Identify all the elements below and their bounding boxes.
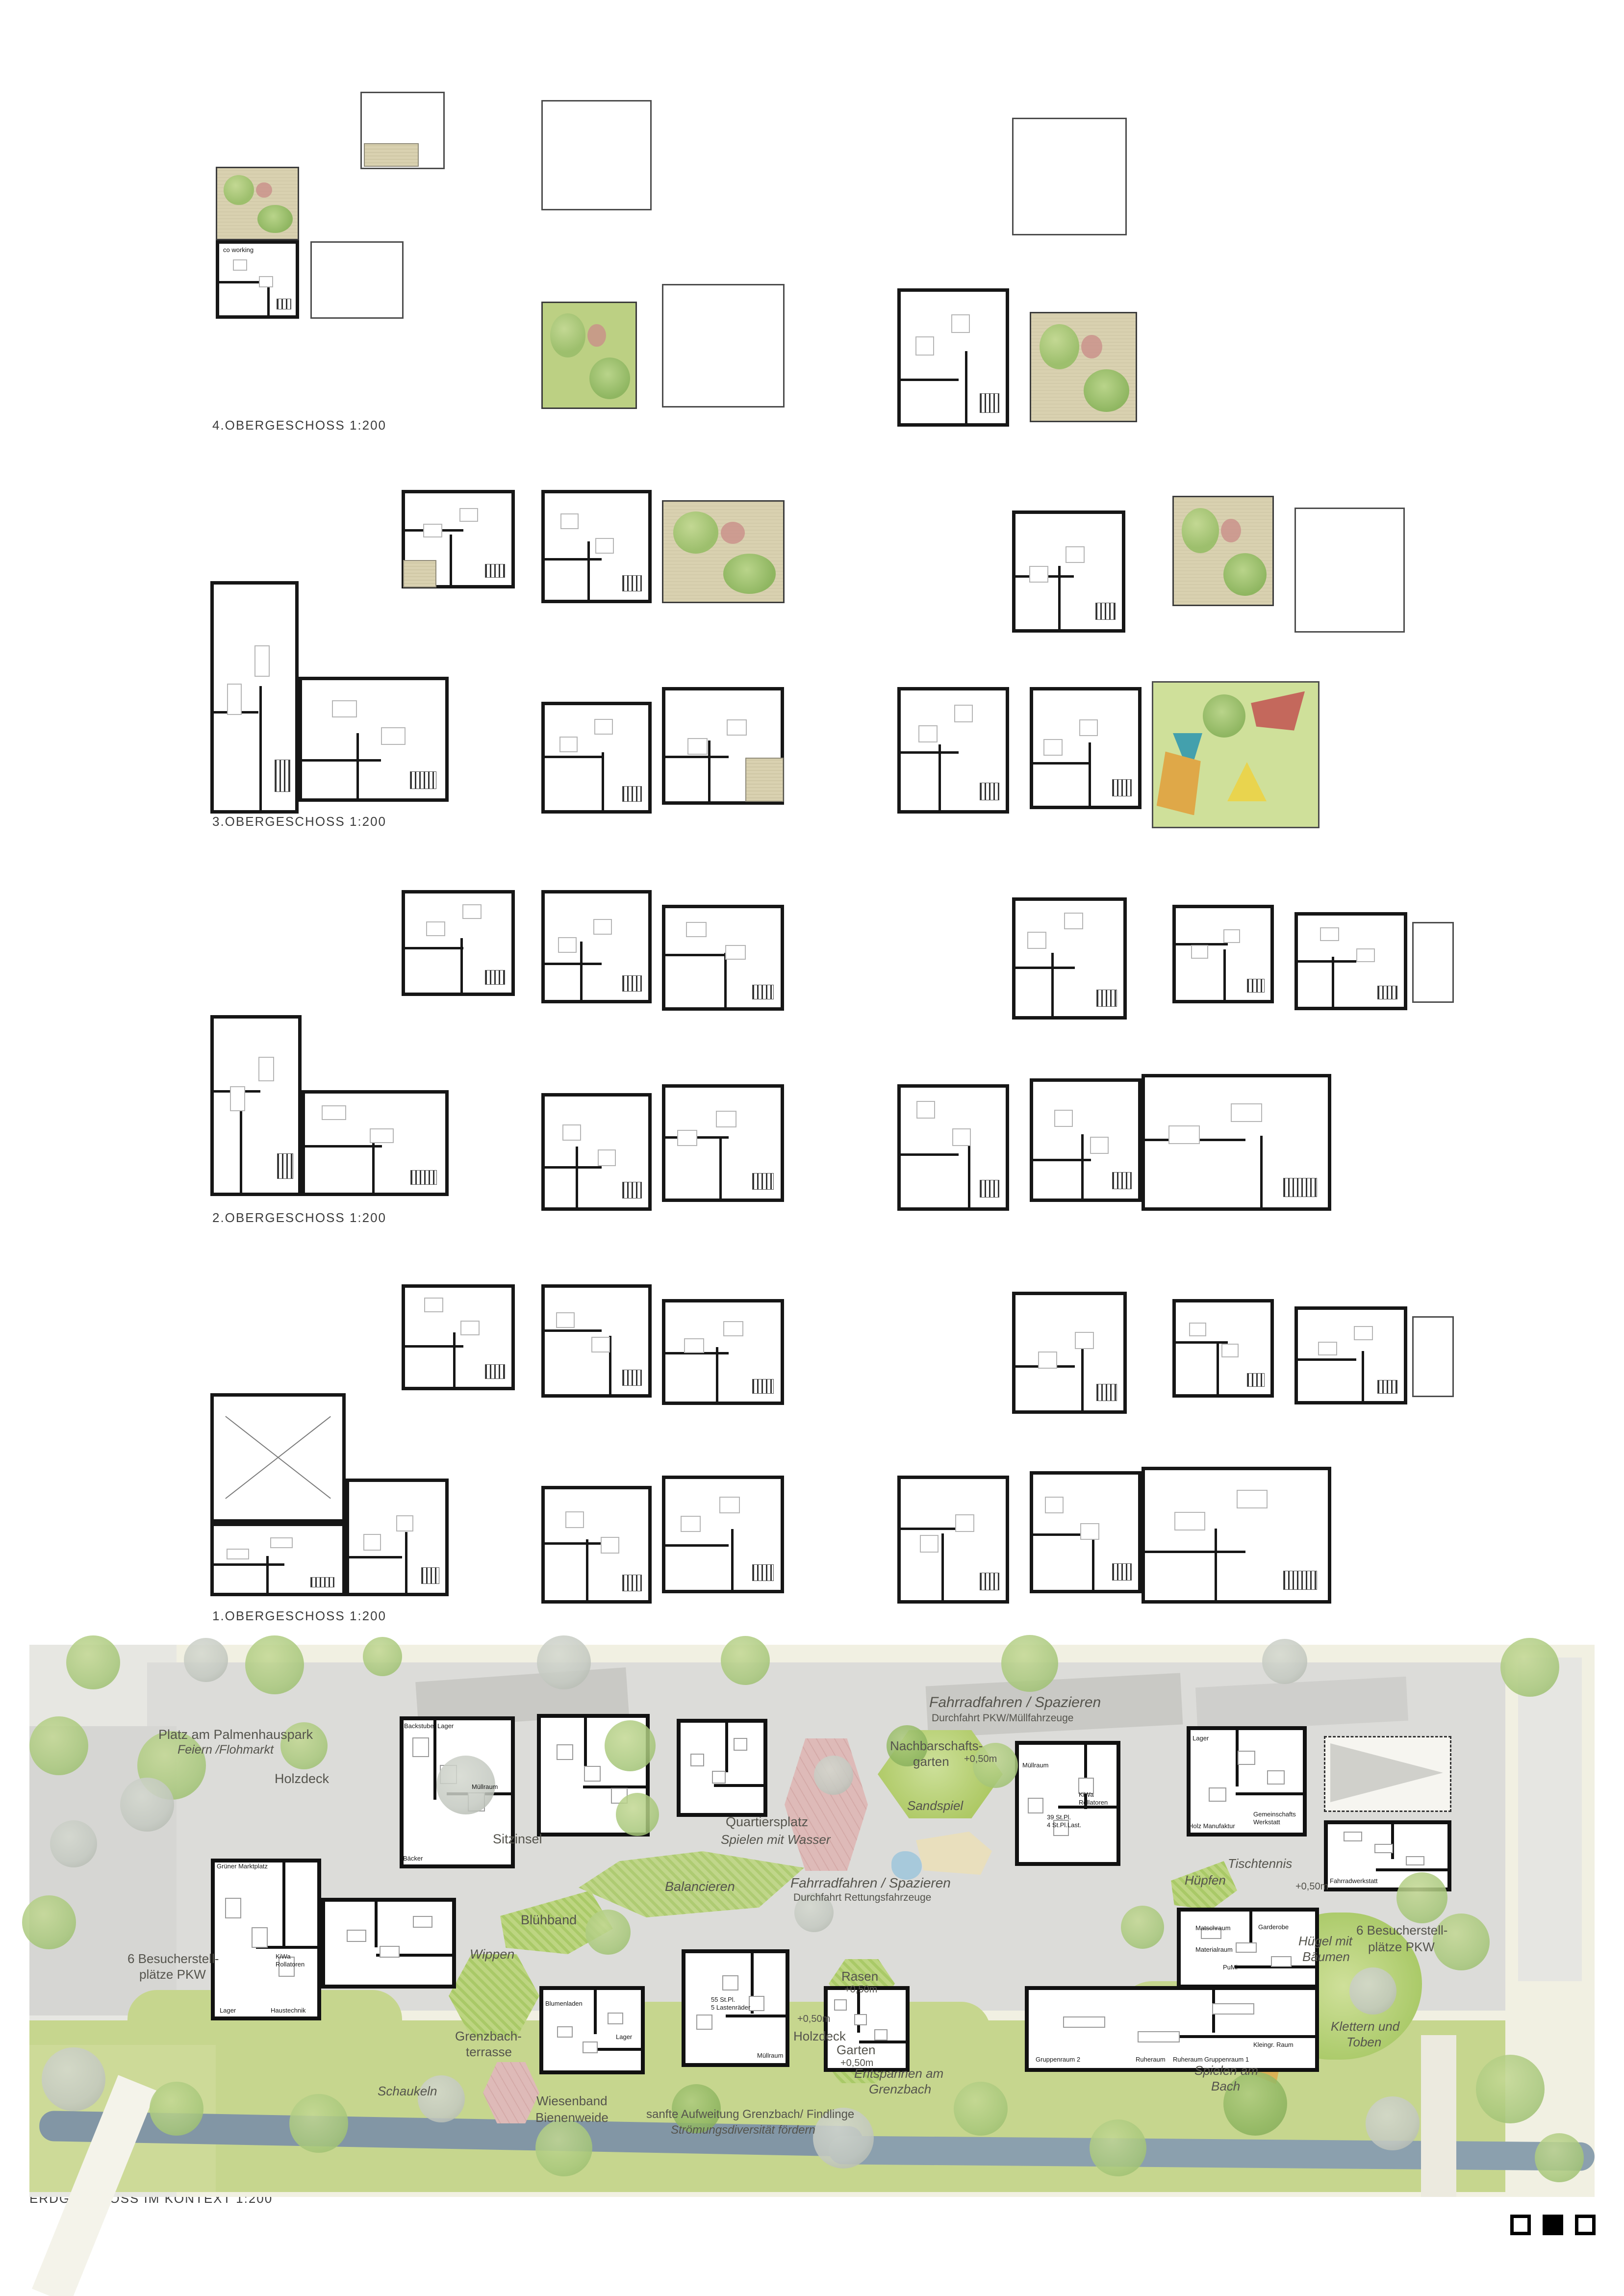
stair-icon <box>622 1575 642 1591</box>
stair-icon <box>410 771 437 789</box>
room-label: Gemeinschafts Werkstatt <box>1253 1811 1296 1826</box>
site-label: Quartiersplatz <box>726 1814 808 1830</box>
interior-wall <box>214 1563 284 1566</box>
furniture <box>424 1298 443 1312</box>
interior-wall <box>405 947 463 949</box>
site-label: Nachbarschafts- <box>890 1739 983 1754</box>
furniture <box>347 1930 366 1941</box>
site-label: Entspannen am <box>854 2066 943 2081</box>
interior-wall <box>580 942 583 1000</box>
stair-icon <box>277 1153 293 1179</box>
tree-icon <box>1262 1639 1307 1684</box>
stair-icon <box>980 1573 1000 1591</box>
tree-icon <box>616 1793 659 1836</box>
floor-plan-building <box>541 1486 652 1604</box>
tree-icon <box>120 1778 174 1832</box>
tree-icon <box>1349 1967 1396 2015</box>
play-structure <box>1251 691 1305 731</box>
site-label: Tischtennis <box>1228 1857 1292 1871</box>
stair-icon <box>1283 1571 1317 1590</box>
floor-plan-building <box>897 687 1009 814</box>
furniture <box>593 919 612 935</box>
site-label: sanfte Aufweitung Grenzbach/ Findlinge <box>646 2108 854 2121</box>
stair-icon <box>1377 986 1397 999</box>
room-label: Bäcker <box>403 1855 423 1862</box>
site-label: Wiesenband <box>536 2094 608 2109</box>
floor-plan-building <box>1294 1306 1407 1404</box>
furniture <box>915 336 934 356</box>
interior-wall <box>665 1544 729 1547</box>
furniture <box>1374 1844 1393 1853</box>
furniture <box>233 259 247 271</box>
interior-wall <box>453 1332 456 1387</box>
floor-plan-building <box>662 1476 784 1593</box>
furniture <box>920 1535 939 1553</box>
tree-icon <box>814 1756 853 1795</box>
furniture <box>258 1057 274 1081</box>
interior-wall <box>450 535 452 585</box>
room-label: Ruheraum <box>1173 2056 1203 2064</box>
tree-icon <box>1084 369 1130 412</box>
tree-icon <box>257 205 293 233</box>
furniture <box>252 1927 268 1948</box>
floor-plan-building <box>1030 687 1142 809</box>
furniture <box>1231 1103 1262 1122</box>
stair-icon <box>622 786 642 802</box>
floor-plan-building <box>1294 508 1405 633</box>
interior-wall <box>405 1532 407 1593</box>
furniture <box>558 937 577 953</box>
furniture <box>1028 1798 1043 1814</box>
furniture <box>1027 932 1046 949</box>
site-label: Balancieren <box>665 1879 735 1894</box>
site-zone <box>1421 2035 1456 2197</box>
room-label: Holz Manufaktur <box>1189 1822 1235 1830</box>
furniture <box>686 922 707 937</box>
furniture <box>749 1996 765 2011</box>
site-building <box>211 1859 321 2020</box>
interior-wall <box>545 558 602 561</box>
shelter-roof-triangle <box>1330 1743 1443 1802</box>
play-structure <box>1157 751 1201 815</box>
room-label: Gruppenraum 1 <box>1204 2056 1249 2064</box>
furniture <box>716 1111 736 1127</box>
floor-plan-building <box>210 1393 346 1523</box>
site-label: Schaukeln <box>378 2084 437 2099</box>
site-label: plätze PKW <box>1368 1940 1435 1955</box>
furniture <box>459 508 479 522</box>
tree-icon <box>537 1635 591 1689</box>
furniture <box>952 1128 971 1146</box>
floor-plan-building <box>210 1015 302 1196</box>
furniture <box>1221 1344 1239 1357</box>
furniture <box>584 1766 601 1782</box>
interior-wall <box>266 1556 269 1593</box>
furniture <box>1344 1832 1362 1841</box>
furniture <box>1168 1125 1200 1144</box>
site-label: Hügel mit <box>1298 1934 1352 1949</box>
bike-shelter-outline <box>1324 1736 1451 1812</box>
floor-plan-building <box>662 1299 784 1405</box>
interior-wall <box>1298 960 1356 963</box>
page-dot-2[interactable] <box>1543 2215 1563 2235</box>
interior-wall <box>460 938 463 993</box>
interior-wall <box>545 963 602 965</box>
furniture <box>462 904 482 919</box>
furniture <box>854 2014 867 2025</box>
furniture <box>1354 1326 1373 1340</box>
furniture <box>684 1338 705 1353</box>
site-label: Spielen am <box>1194 2064 1258 2078</box>
room-label: Lager <box>616 2033 632 2041</box>
interior-wall <box>725 1723 728 1772</box>
interior-wall <box>1033 762 1091 765</box>
site-building <box>677 1719 767 1817</box>
stair-icon <box>1095 603 1116 620</box>
furniture <box>1223 929 1241 943</box>
tree-icon <box>224 175 254 204</box>
interior-wall <box>731 1529 734 1590</box>
floor-plan-building <box>541 1284 652 1398</box>
site-label: terrasse <box>466 2045 512 2060</box>
furniture <box>696 2015 712 2030</box>
interior-wall <box>602 752 604 810</box>
furniture <box>874 2029 887 2041</box>
site-label: Toben <box>1346 2035 1381 2050</box>
site-label: Sandspiel <box>907 1799 963 1813</box>
interior-wall <box>1145 1551 1245 1553</box>
interior-wall <box>375 1902 378 1947</box>
interior-wall <box>1236 1792 1303 1795</box>
site-label: Spielen mit Wasser <box>721 1833 831 1847</box>
site-label: Platz am Palmenhauspark <box>158 1727 313 1742</box>
site-building <box>539 1986 645 2074</box>
furniture <box>1075 1332 1094 1349</box>
tree-icon <box>673 511 719 554</box>
interior-wall <box>1051 953 1054 1016</box>
room-label: KiWa Rollatoren <box>1079 1791 1108 1806</box>
tree-icon <box>723 554 776 594</box>
tree-icon <box>1500 1638 1559 1697</box>
interior-wall <box>714 1784 763 1787</box>
furniture <box>916 1101 935 1119</box>
furniture <box>1043 739 1062 756</box>
floor-plan-building <box>1030 312 1137 422</box>
stair-icon <box>752 985 774 999</box>
floor-plan-building <box>897 1476 1009 1604</box>
furniture <box>332 700 357 717</box>
interior-wall <box>901 379 959 381</box>
site-label: Hüpfen <box>1185 1873 1226 1888</box>
furniture <box>363 1534 381 1550</box>
floor-plan-building <box>1152 681 1319 828</box>
site-label: Grenzbach <box>869 2082 931 2097</box>
tree-icon <box>1396 1872 1447 1923</box>
furniture <box>955 1514 974 1532</box>
furniture <box>1080 1523 1099 1540</box>
interior-wall <box>1081 1347 1084 1410</box>
plan-annotation: co working <box>223 246 254 254</box>
tree-icon <box>535 2119 592 2176</box>
furniture <box>1029 566 1048 583</box>
umbrella-icon <box>587 324 606 347</box>
furniture <box>1267 1770 1285 1785</box>
page-dot-1[interactable] <box>1510 2215 1531 2235</box>
floor-plan-building <box>1412 922 1454 1003</box>
furniture <box>918 725 937 743</box>
site-label: +0,50m <box>844 1984 877 1995</box>
tree-icon <box>1433 1913 1490 1970</box>
interior-wall <box>968 1142 970 1207</box>
furniture <box>559 737 578 752</box>
umbrella-icon <box>721 522 745 544</box>
site-label: garten <box>913 1755 949 1769</box>
interior-wall <box>405 1345 463 1348</box>
page-dot-3[interactable] <box>1575 2215 1596 2235</box>
site-label: Feiern /Flohmarkt <box>178 1743 274 1757</box>
furniture <box>598 1149 616 1166</box>
tree-icon <box>1121 1906 1164 1949</box>
room-label: Haustechnik <box>271 2007 306 2015</box>
interior-wall <box>545 1329 602 1332</box>
floor-plan-building <box>1012 897 1127 1020</box>
site-label: Fahrradfahren / Spazieren <box>790 1875 951 1891</box>
interior-wall <box>857 1990 860 2033</box>
interior-wall <box>1215 1529 1217 1600</box>
stair-icon <box>1112 1172 1132 1189</box>
furniture <box>259 276 273 287</box>
furniture <box>954 705 973 722</box>
floor-plan-building <box>541 890 652 1003</box>
stair-icon <box>752 1173 774 1190</box>
room-label: Matschraum <box>1195 1924 1231 1932</box>
furniture <box>381 727 406 744</box>
site-label: Bienenweide <box>535 2111 609 2125</box>
tree-icon <box>721 1636 770 1685</box>
room-label: Müllraum <box>757 2052 783 2060</box>
site-label: Holzdeck <box>275 1771 329 1786</box>
interior-wall <box>1332 957 1334 1007</box>
furniture <box>1406 1856 1424 1865</box>
furniture <box>562 1124 581 1141</box>
stair-icon <box>752 1379 774 1394</box>
floor-plan-building <box>1012 510 1125 633</box>
stair-icon <box>1096 990 1117 1007</box>
interior-wall <box>587 541 590 600</box>
furniture <box>1209 1787 1226 1802</box>
room-label: Müllraum <box>472 1783 498 1791</box>
stair-icon <box>1247 1373 1265 1387</box>
floor-plan-building <box>897 288 1009 427</box>
furniture <box>370 1128 394 1143</box>
room-label: PuMi <box>1223 1964 1238 1971</box>
interior-wall <box>545 1542 602 1545</box>
furniture <box>557 1744 573 1760</box>
room-label: Lager <box>437 1722 454 1730</box>
floor-plan-building <box>216 167 299 240</box>
furniture <box>1054 1110 1073 1127</box>
interior-wall <box>1298 1358 1356 1361</box>
floor-plan-building <box>1142 1467 1331 1604</box>
tree-icon <box>1090 2119 1146 2176</box>
presentation-board: 4.OBERGESCHOSS 1:2003.OBERGESCHOSS 1:200… <box>0 0 1624 2296</box>
furniture <box>225 1898 241 1918</box>
furniture <box>712 1771 726 1784</box>
floor-plan-building <box>364 143 419 167</box>
floor-plan-building <box>1172 1299 1274 1398</box>
tree-icon <box>150 2082 203 2136</box>
room-label: Müllraum <box>1022 1761 1048 1769</box>
furniture <box>1045 1497 1064 1514</box>
floor-plan-building <box>210 1523 346 1596</box>
stair-icon <box>421 1567 439 1584</box>
stair-icon <box>485 564 505 578</box>
furniture <box>380 1946 399 1958</box>
interior-wall <box>1033 1159 1091 1161</box>
interior-wall <box>240 1097 242 1193</box>
stair-icon <box>485 1364 505 1379</box>
stair-icon <box>980 1180 1000 1198</box>
furniture <box>1320 927 1339 941</box>
furniture <box>734 1738 747 1751</box>
tree-icon <box>245 1635 304 1694</box>
room-label: 39 St.Pl. 4 St.Pl.Last. <box>1047 1813 1081 1829</box>
furniture <box>1271 1956 1292 1967</box>
floor-plan-building <box>1030 1078 1142 1202</box>
section-label: 1.OBERGESCHOSS 1:200 <box>212 1608 386 1624</box>
floor-plan-building <box>541 490 652 603</box>
tree-icon <box>66 1635 120 1689</box>
stair-icon <box>1377 1380 1397 1394</box>
room-label: KiWa Rollatoren <box>276 1953 304 1968</box>
furniture <box>396 1515 413 1531</box>
tree-icon <box>605 1720 656 1771</box>
floor-plan-building <box>302 1090 449 1196</box>
floor-plan-building <box>1030 1471 1142 1593</box>
interior-wall <box>545 756 602 758</box>
interior-wall <box>219 281 261 283</box>
furniture <box>608 2013 623 2024</box>
stair-icon <box>1112 779 1132 796</box>
floor-plan-building <box>1412 1316 1454 1397</box>
site-label: Klettern und <box>1331 2019 1399 2034</box>
furniture <box>1038 1352 1057 1369</box>
site-label: 6 Besucherstell- <box>127 1952 219 1966</box>
furniture <box>426 921 445 936</box>
site-label: +0,50m <box>1295 1881 1328 1892</box>
interior-wall <box>545 1166 602 1169</box>
stair-icon <box>1283 1178 1317 1197</box>
site-label: +0,50m <box>797 2014 830 2025</box>
furniture <box>1138 2031 1180 2042</box>
furniture <box>727 719 747 736</box>
floor-plan-building <box>402 890 515 996</box>
interior-wall <box>1176 1341 1228 1344</box>
tree-icon <box>1040 324 1079 369</box>
floor-plan-building <box>541 100 652 210</box>
furniture <box>677 1130 698 1146</box>
site-label: Fahrradfahren / Spazieren <box>929 1694 1101 1711</box>
site-zone <box>1518 1658 1582 1981</box>
interior-wall <box>1362 1351 1364 1401</box>
furniture <box>725 945 746 960</box>
furniture <box>601 1537 619 1553</box>
interior-wall <box>1015 967 1075 969</box>
furniture <box>1174 1512 1206 1531</box>
stair-icon <box>277 299 291 309</box>
floor-plan-building <box>662 905 784 1011</box>
floor-plan-building <box>1294 912 1407 1010</box>
furniture <box>723 1321 744 1336</box>
floor-plan-building <box>210 581 299 814</box>
furniture <box>1090 1137 1109 1154</box>
section-label: 3.OBERGESCHOSS 1:200 <box>212 814 386 829</box>
stair-icon <box>275 760 290 792</box>
furniture <box>591 1337 610 1352</box>
furniture <box>1237 1490 1268 1508</box>
interior-wall <box>282 1862 285 1947</box>
tree-icon <box>1001 1635 1058 1692</box>
site-building <box>321 1898 456 1989</box>
room-label: Garderobe <box>1258 1923 1289 1931</box>
furniture <box>322 1105 346 1120</box>
site-label: 6 Besucherstell- <box>1356 1923 1447 1938</box>
tree-icon <box>42 2047 105 2111</box>
interior-wall <box>726 2015 786 2017</box>
furniture <box>681 1516 701 1532</box>
furniture <box>423 524 442 537</box>
room-label: Lager <box>1193 1735 1209 1742</box>
tree-icon <box>29 1716 88 1775</box>
interior-wall <box>305 1145 382 1148</box>
interior-wall <box>1081 1134 1084 1199</box>
floor-plan-building <box>1172 905 1274 1003</box>
furniture <box>1064 913 1083 930</box>
furniture <box>722 1975 738 1990</box>
stair-icon <box>622 975 642 991</box>
floor-plan-building <box>346 1479 449 1596</box>
furniture <box>687 738 708 754</box>
furniture <box>270 1537 293 1548</box>
room-label: Blumenladen <box>545 2000 583 2008</box>
interior-wall <box>941 1533 944 1600</box>
stair-icon <box>622 1182 642 1199</box>
tree-icon <box>1366 2096 1420 2150</box>
interior-wall <box>708 740 710 801</box>
floor-plan-building <box>403 560 436 587</box>
floor-plan-building <box>1012 1292 1127 1414</box>
site-label: Durchfahrt PKW/Müllfahrzeuge <box>932 1712 1073 1724</box>
site-label: Rasen <box>841 1969 878 1984</box>
floor-plan-building <box>1012 118 1127 235</box>
site-label: Bäumen <box>1302 1950 1350 1964</box>
stair-icon <box>622 575 642 591</box>
interior-wall <box>576 1147 578 1207</box>
site-label: +0,50m <box>964 1754 997 1765</box>
floor-plan-building <box>310 241 404 319</box>
furniture <box>254 645 270 677</box>
stair-icon <box>310 1577 334 1587</box>
site-label: Blühband <box>521 1913 577 1928</box>
furniture <box>1189 1323 1206 1336</box>
interior-wall <box>901 1528 959 1530</box>
interior-wall <box>901 751 959 754</box>
floor-plan-building <box>541 1093 652 1211</box>
site-label: Durchfahrt Rettungsfahrzeuge <box>793 1892 931 1904</box>
furniture <box>594 719 613 735</box>
floor-plan-building <box>541 702 652 814</box>
room-label: Kleingr. Raum <box>1253 2041 1294 2049</box>
